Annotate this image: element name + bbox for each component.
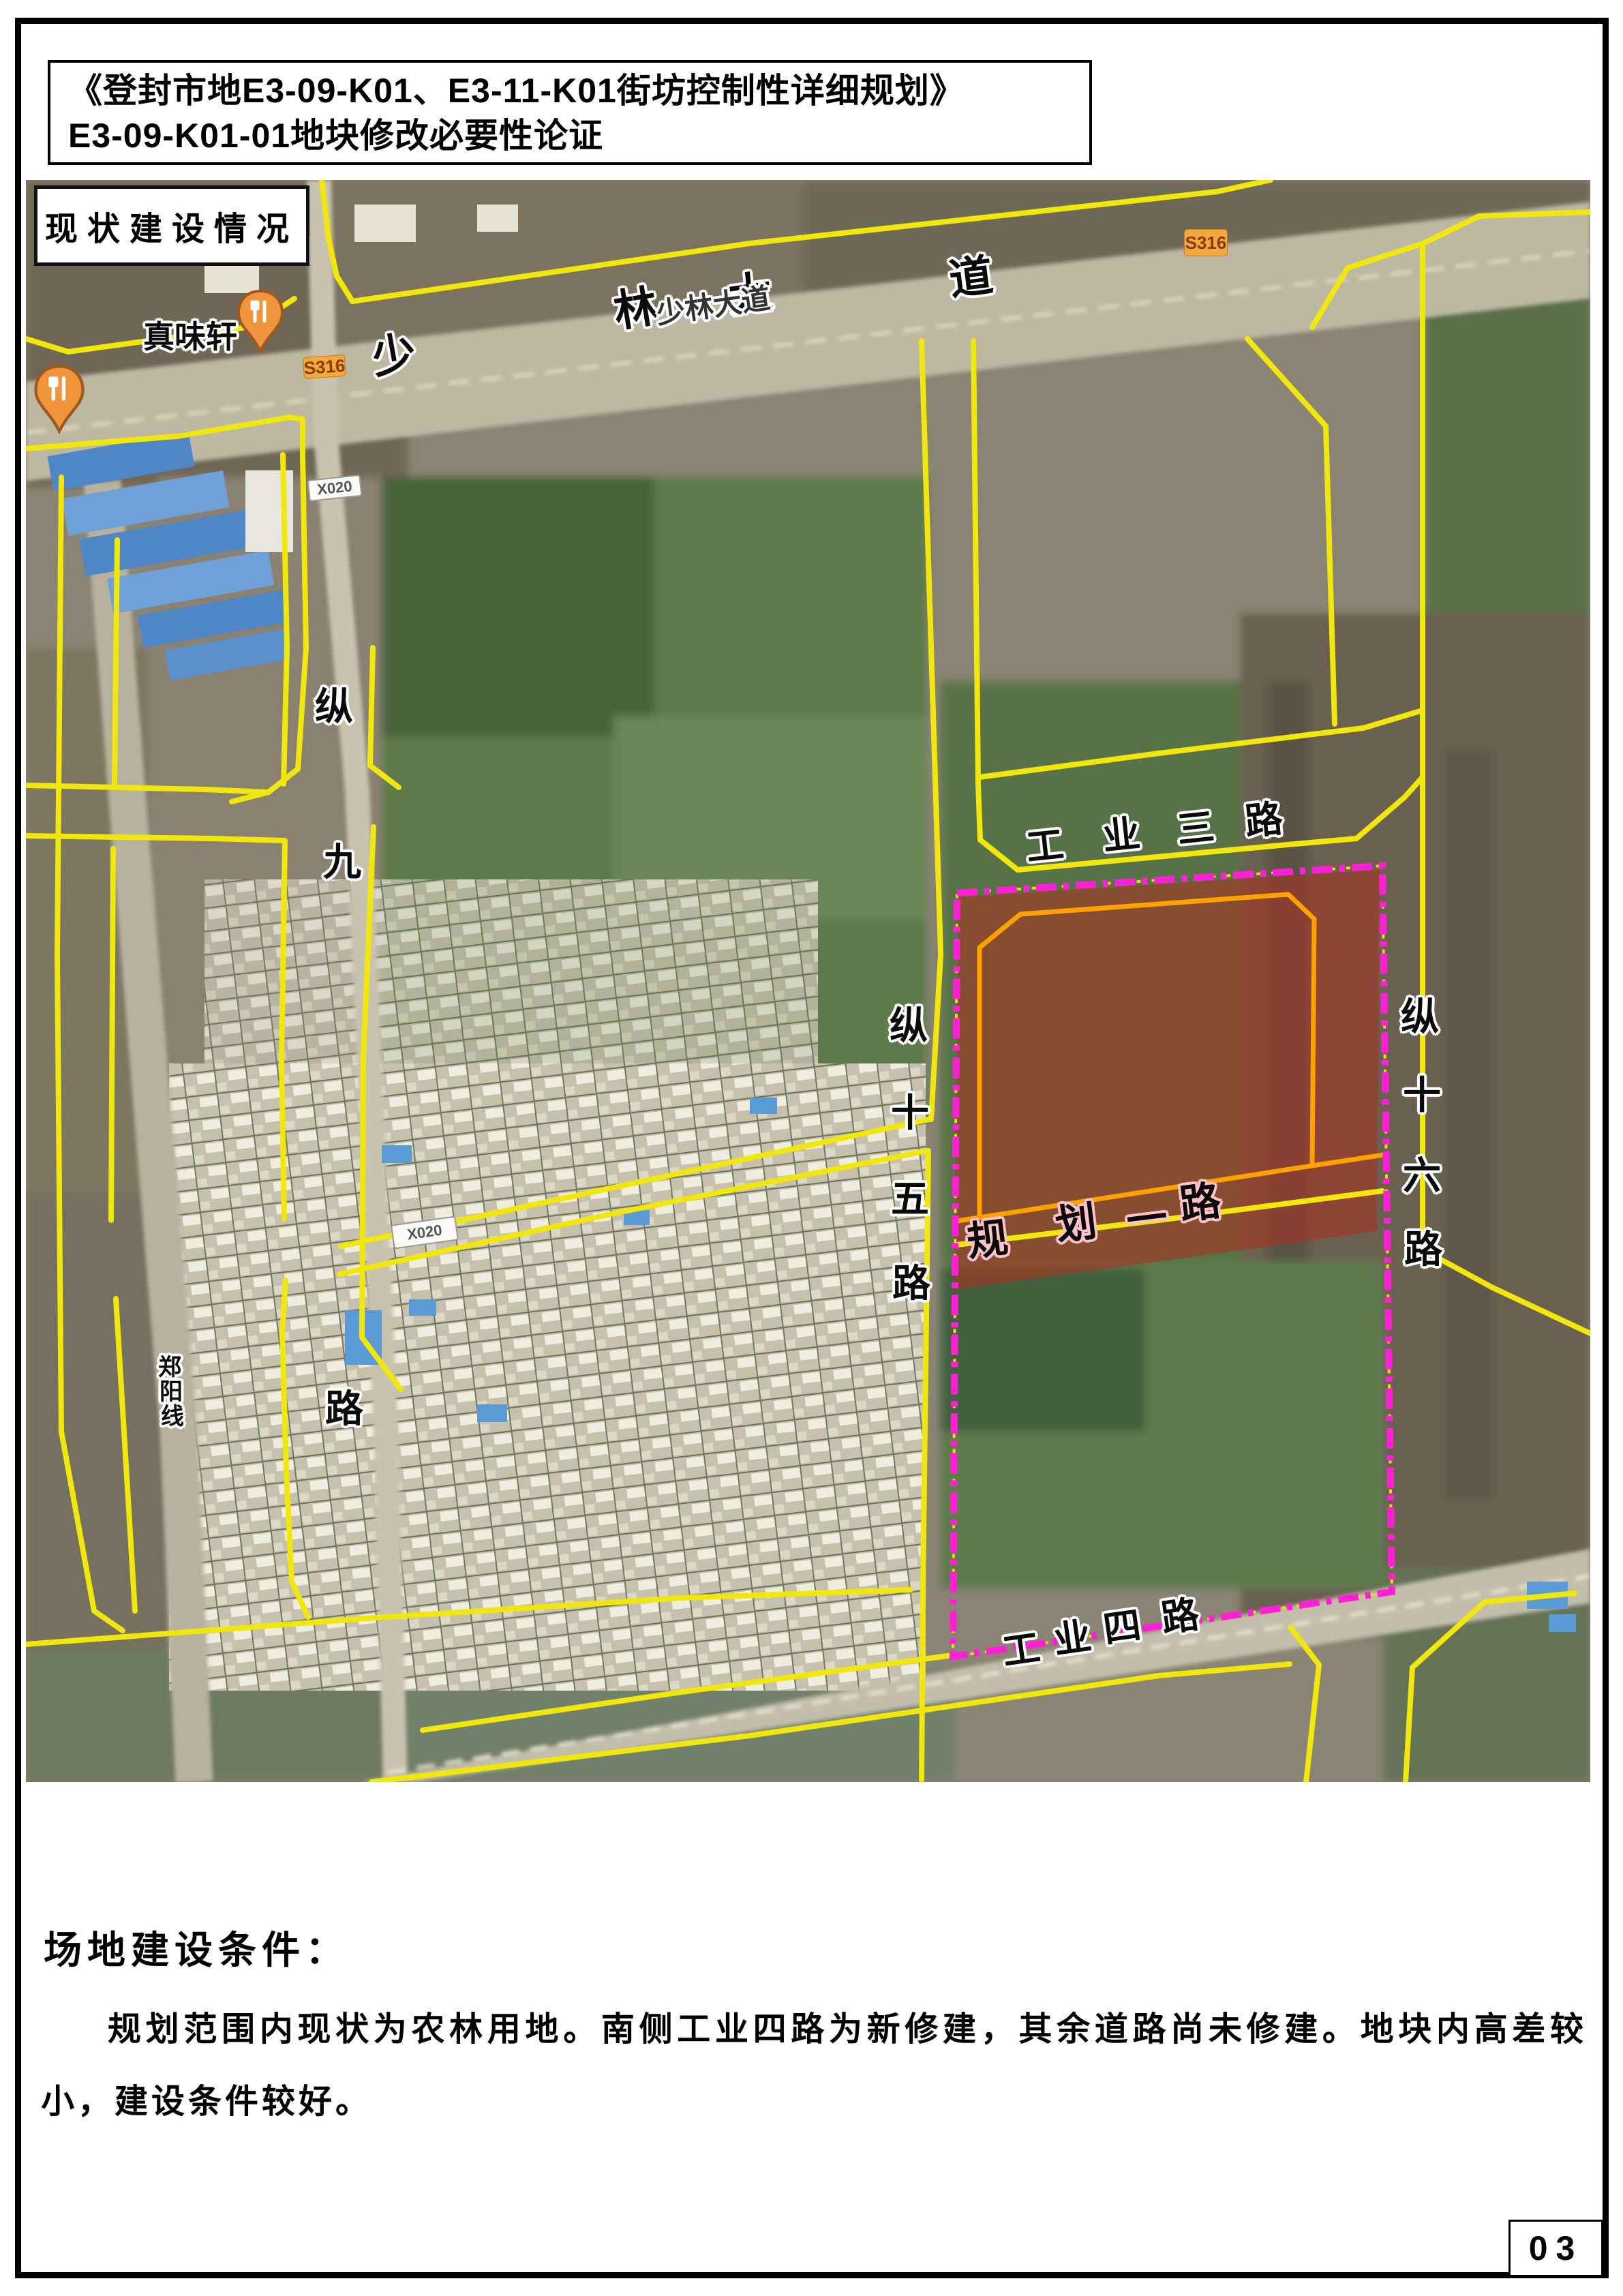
road-label-shaolin-char4: 道 bbox=[945, 240, 997, 307]
road-label-gongye4-char4: 路 bbox=[1157, 1584, 1202, 1643]
basemap-label-zhengyang-char3: 线 bbox=[161, 1398, 184, 1431]
road-label-gongye3-char3: 三 bbox=[1174, 796, 1217, 854]
road-label-zong15-char3: 五 bbox=[891, 1168, 929, 1224]
road-label-gongye4-char2: 业 bbox=[1050, 1605, 1095, 1665]
road-label-zong16-char3: 六 bbox=[1403, 1145, 1441, 1200]
route-badge-s316-text: S316 bbox=[303, 354, 346, 378]
road-label-zong9-char2: 九 bbox=[323, 832, 361, 887]
satellite-map: 现状建设情况 少 林 大 道 少林大道 工 业 三 路 工 业 四 路 规 划 … bbox=[26, 180, 1590, 1782]
planning-document-page: { "page": { "title_line1": "《登封市地E3-09-K… bbox=[0, 0, 1623, 2296]
road-label-zong16-char2: 十 bbox=[1403, 1065, 1441, 1120]
road-label-zong9-char3: 路 bbox=[325, 1378, 363, 1434]
map-status-title: 现状建设情况 bbox=[45, 202, 299, 250]
road-label-zong16-char4: 路 bbox=[1404, 1219, 1442, 1274]
road-label-gongye3-char1: 工 bbox=[1023, 813, 1066, 871]
map-status-title-box: 现状建设情况 bbox=[34, 185, 309, 266]
map-graphics bbox=[26, 180, 1590, 1782]
page-number: 03 bbox=[1529, 2229, 1583, 2268]
road-label-zong15-char4: 路 bbox=[892, 1253, 930, 1308]
document-title-box: 《登封市地E3-09-K01、E3-11-K01街坊控制性详细规划》 E3-09… bbox=[48, 60, 1092, 165]
road-label-gongye4-char3: 四 bbox=[1099, 1595, 1144, 1654]
route-badge-x020-text: X020 bbox=[406, 1222, 444, 1244]
road-label-gongye3-char2: 业 bbox=[1099, 802, 1142, 860]
road-label-zong15-char1: 纵 bbox=[890, 995, 928, 1051]
road-label-guihua1-char1: 规 bbox=[963, 1205, 1011, 1269]
route-badge-s316-text: S316 bbox=[1185, 232, 1227, 254]
document-title-line2: E3-09-K01-01地块修改必要性论证 bbox=[68, 113, 1072, 158]
road-label-gongye3-char4: 路 bbox=[1242, 787, 1285, 845]
footer-section-heading: 场地建设条件： bbox=[44, 1920, 349, 1975]
road-label-zong16-char1: 纵 bbox=[1401, 986, 1439, 1042]
road-label-guihua1-char4: 路 bbox=[1176, 1168, 1224, 1232]
road-label-guihua1-char2: 划 bbox=[1052, 1188, 1099, 1252]
poi-restaurant-label: 真味轩 bbox=[143, 312, 237, 357]
route-badge-x020-text: X020 bbox=[316, 477, 353, 498]
road-label-zong9-char1: 纵 bbox=[315, 676, 353, 731]
restaurant-pin-icon bbox=[31, 362, 87, 436]
page-number-box: 03 bbox=[1508, 2220, 1603, 2277]
footer-paragraph: 规划范围内现状为农林用地。南侧工业四路为新修建，其余道路尚未修建。地块内高差较小… bbox=[41, 1993, 1587, 2138]
route-badge-s316: S316 bbox=[1184, 229, 1228, 256]
road-label-zong15-char2: 十 bbox=[891, 1083, 929, 1138]
route-badge-s316: S316 bbox=[303, 354, 346, 379]
document-title-line1: 《登封市地E3-09-K01、E3-11-K01街坊控制性详细规划》 bbox=[68, 68, 1072, 113]
restaurant-pin-icon bbox=[234, 287, 286, 355]
road-label-gongye4-char1: 工 bbox=[999, 1617, 1044, 1676]
road-label-guihua1-char3: 一 bbox=[1123, 1184, 1170, 1248]
